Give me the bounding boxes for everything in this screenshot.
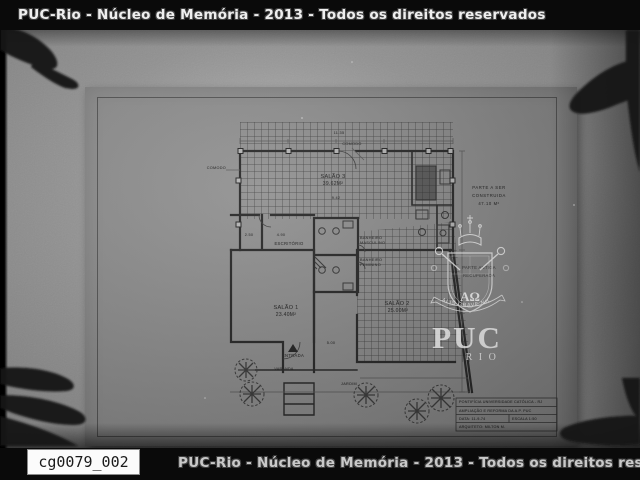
photo-left-border <box>0 30 8 448</box>
photo-vignette <box>0 30 640 448</box>
top-watermark-bar: PUC-Rio - Núcleo de Memória - 2013 - Tod… <box>0 0 640 30</box>
archival-photo-page: { "header": { "watermark_text": "PUC-Rio… <box>0 0 640 480</box>
bottom-watermark-text: PUC-Rio - Núcleo de Memória - 2013 - Tod… <box>178 455 640 471</box>
catalog-id-label: cg0079_002 <box>27 449 140 475</box>
top-watermark-text: PUC-Rio - Núcleo de Memória - 2013 - Tod… <box>18 7 546 23</box>
